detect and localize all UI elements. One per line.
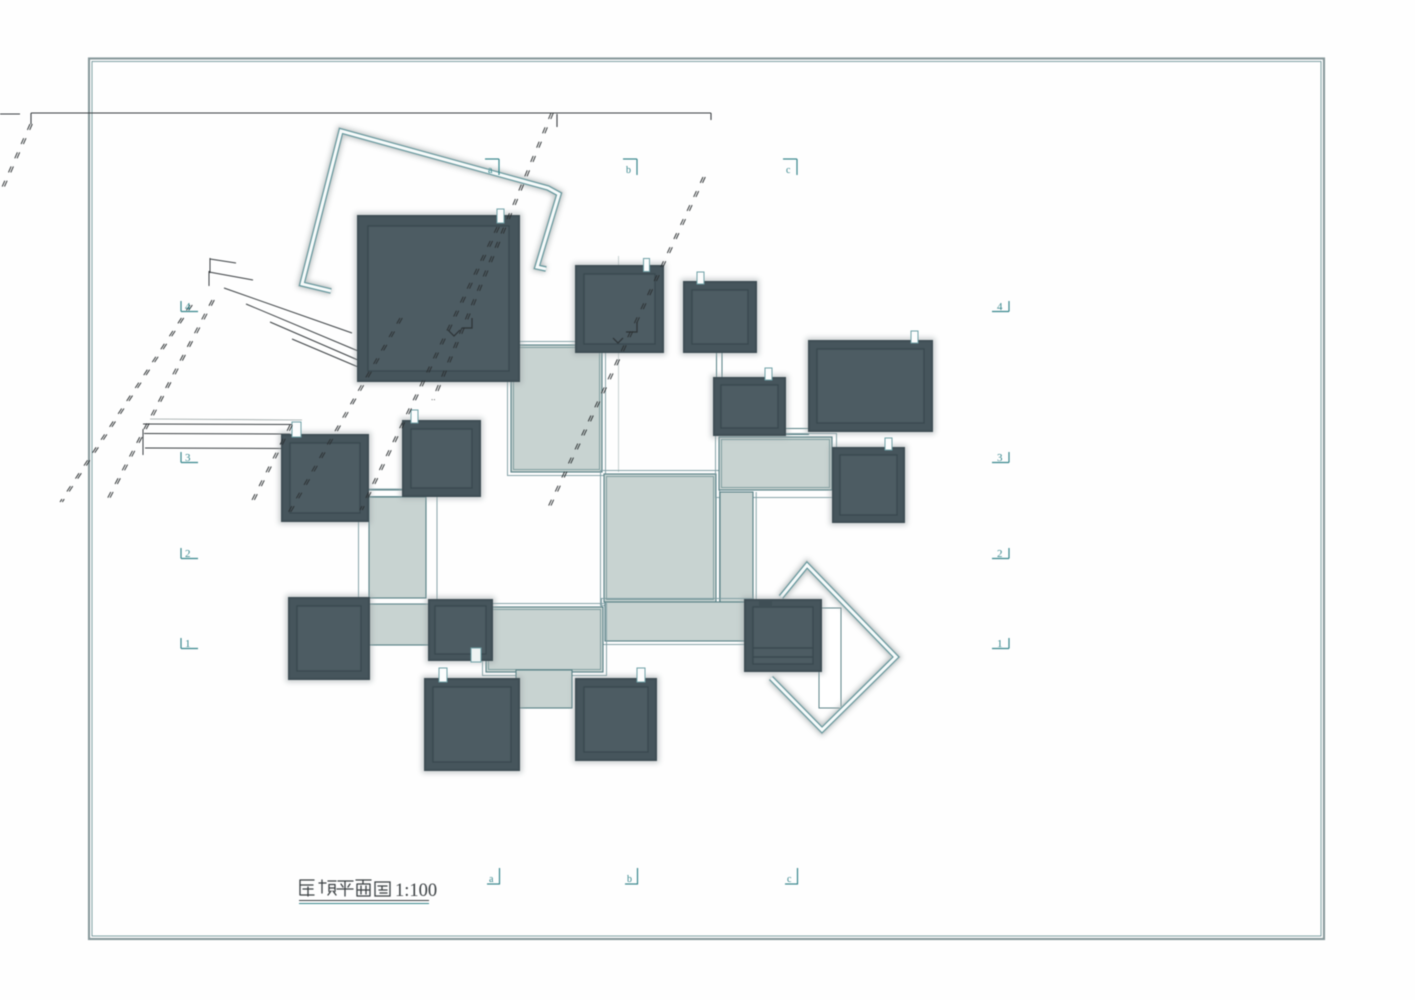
svg-text:1:100: 1:100 <box>395 881 437 901</box>
svg-text:1: 1 <box>185 638 191 650</box>
svg-text:3: 3 <box>997 452 1003 464</box>
svg-text:a: a <box>488 165 493 176</box>
svg-text:c: c <box>787 874 792 885</box>
svg-text:b: b <box>626 165 631 176</box>
svg-text:4: 4 <box>185 301 191 313</box>
svg-text:2: 2 <box>997 548 1003 560</box>
svg-text:1: 1 <box>997 638 1003 650</box>
svg-text:c: c <box>786 165 791 176</box>
svg-text:3: 3 <box>185 452 191 464</box>
svg-text:2: 2 <box>185 548 191 560</box>
svg-text:b: b <box>627 874 632 885</box>
svg-text:a: a <box>489 874 494 885</box>
svg-text:4: 4 <box>997 301 1003 313</box>
